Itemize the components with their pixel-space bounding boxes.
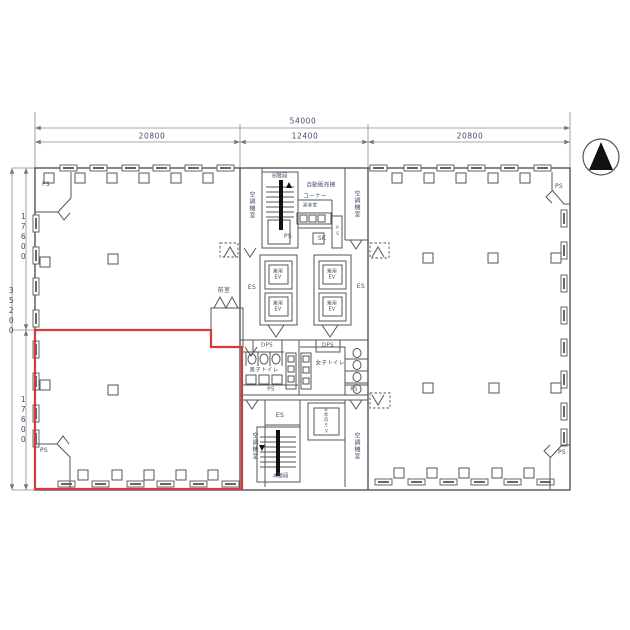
red-highlight-outline: [35, 330, 242, 489]
label-emergency-ev: 非常用EV: [324, 408, 328, 435]
label-es-right: ES: [357, 284, 365, 290]
ev-line2: EV: [327, 275, 337, 281]
north-arrow-icon: [583, 139, 619, 175]
floor-plan-page: 54000 20800 12400 20800 35200 17600 1760…: [0, 0, 630, 630]
label-ps-bottom-left: PS: [40, 448, 48, 454]
label-ps-core-slot: PS: [335, 225, 339, 237]
dim-center-bay: 12400: [292, 132, 319, 140]
label-ps-top-left: PS: [42, 182, 50, 188]
label-ac-room-bottom-left: 空調機室: [251, 432, 257, 460]
label-ac-room-top-right: 空調機室: [353, 190, 359, 218]
opening-door-swings: [224, 247, 384, 405]
dim-right-bay: 20800: [457, 132, 484, 140]
dim-upper-depth: 17600: [19, 212, 27, 262]
label-hot-water-room: 湯沸室: [303, 205, 318, 210]
label-ps-bottom-right: PS: [558, 450, 566, 456]
ev-line2: EV: [327, 307, 337, 313]
core-lower-block: [240, 400, 368, 487]
label-passenger-ev-4: 乗用EV: [327, 301, 337, 313]
ev-line2: EV: [273, 307, 283, 313]
label-ps-toilet-right: PS: [350, 387, 357, 393]
label-womens-toilet: 女子トイレ: [315, 361, 344, 367]
label-dps-right: DPS: [322, 343, 334, 349]
label-ps-top-right: PS: [555, 184, 563, 190]
label-sk: SK: [318, 236, 326, 242]
label-es-left: ES: [248, 285, 256, 291]
ev-line2: EV: [273, 275, 283, 281]
dim-lower-depth: 17600: [19, 395, 27, 445]
ev-line1: 乗用: [273, 301, 283, 307]
label-mens-toilet: 男子トイレ: [249, 368, 278, 374]
label-passenger-ev-2: 乗用EV: [273, 301, 283, 313]
label-ac-room-bottom-right: 空調機室: [353, 432, 359, 460]
label-vending-line2: コーナー: [303, 194, 326, 200]
ev-line1: 乗用: [327, 269, 337, 275]
dim-total-width: 54000: [290, 117, 317, 125]
label-dps-left: DPS: [261, 343, 273, 349]
label-passenger-ev-3: 乗用EV: [327, 269, 337, 281]
floor-plan-drawing: [0, 0, 630, 630]
label-ps-toilet-left: PS: [267, 387, 274, 393]
label-vending-line1: 自動販売機: [306, 183, 335, 189]
label-stair-a: A階段: [273, 474, 289, 480]
ev-line1: 乗用: [327, 301, 337, 307]
dim-total-depth: 35200: [7, 286, 15, 336]
elevator-banks: [260, 255, 351, 337]
label-passenger-ev-1: 乗用EV: [273, 269, 283, 281]
label-ps-core-top: PS: [284, 234, 292, 240]
dim-left-bay: 20800: [139, 132, 166, 140]
label-stair-b: B階段: [272, 174, 288, 180]
label-anteroom: 前室: [218, 288, 231, 294]
ev-line1: 乗用: [273, 269, 283, 275]
label-ac-room-top-left: 空調機室: [248, 191, 254, 219]
anteroom-outline: [211, 297, 243, 347]
label-es-bottom: ES: [276, 413, 284, 419]
